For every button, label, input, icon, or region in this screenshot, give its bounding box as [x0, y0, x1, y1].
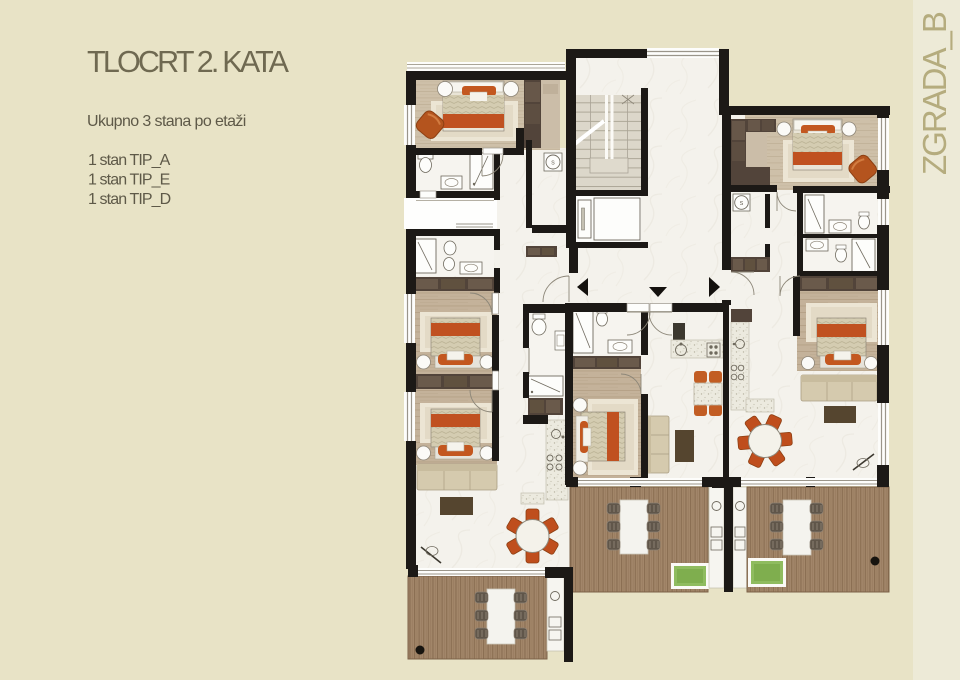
svg-text:ZGRADA_B: ZGRADA_B [916, 12, 953, 175]
svg-text:s: s [740, 200, 744, 207]
svg-text:1 stan TIP_A: 1 stan TIP_A [88, 152, 171, 169]
svg-text:1 stan TIP_D: 1 stan TIP_D [88, 191, 171, 208]
svg-text:s: s [551, 160, 555, 167]
svg-text:1 stan TIP_E: 1 stan TIP_E [88, 172, 170, 189]
svg-text:Ukupno 3 stana po etaži: Ukupno 3 stana po etaži [87, 113, 246, 130]
svg-text:TLOCRT 2. KATA: TLOCRT 2. KATA [87, 45, 290, 79]
